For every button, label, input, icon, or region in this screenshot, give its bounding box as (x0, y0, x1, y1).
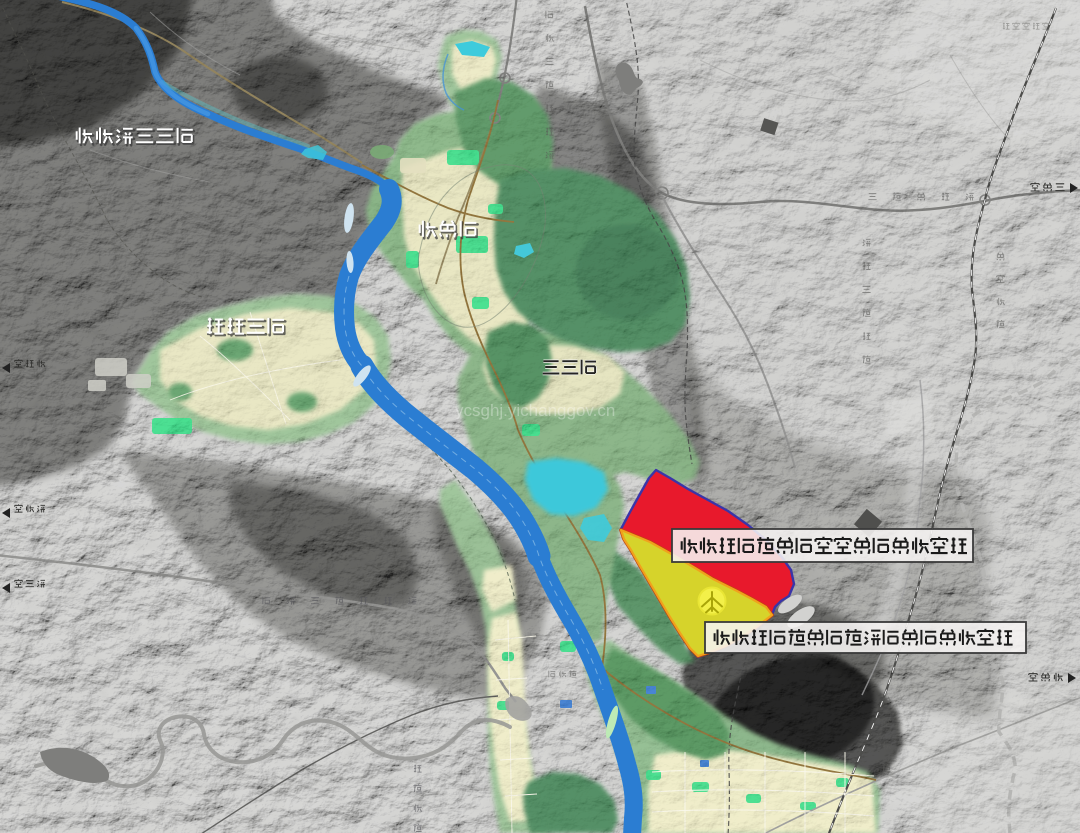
svg-text:ycsghj.yichanggov.cn: ycsghj.yichanggov.cn (455, 401, 615, 420)
